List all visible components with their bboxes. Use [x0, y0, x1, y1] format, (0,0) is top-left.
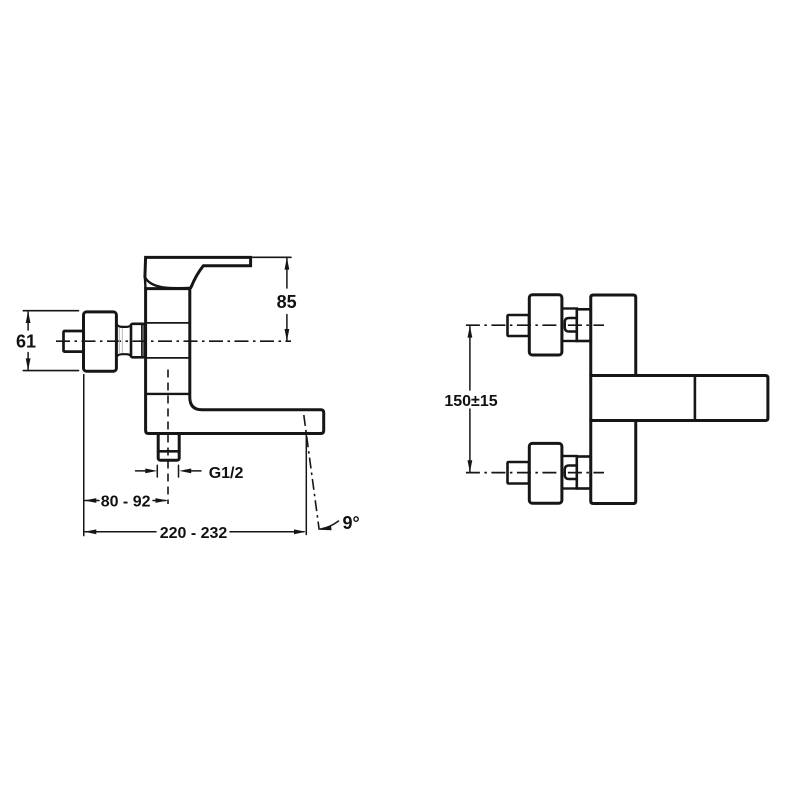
svg-text:9°: 9°	[343, 513, 360, 533]
svg-text:G1/2: G1/2	[209, 465, 244, 482]
svg-text:85: 85	[277, 292, 297, 312]
svg-text:150±15: 150±15	[444, 393, 497, 410]
svg-text:220 - 232: 220 - 232	[160, 525, 228, 542]
svg-text:80 - 92: 80 - 92	[101, 494, 151, 511]
svg-text:61: 61	[16, 332, 36, 352]
